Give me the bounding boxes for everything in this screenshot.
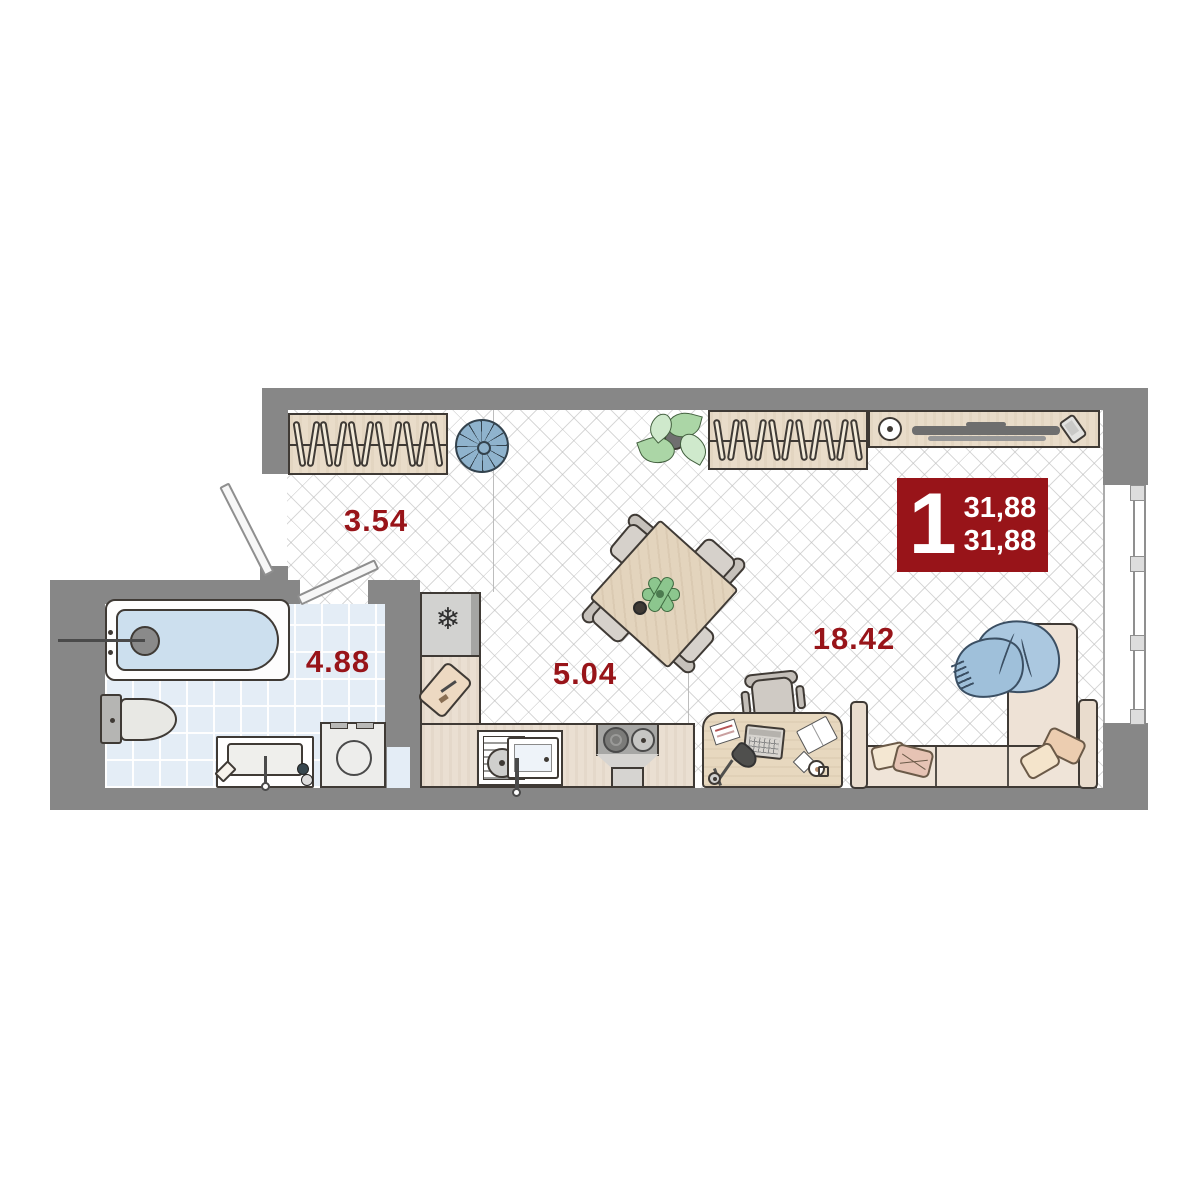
paper-icon [710,718,741,745]
knife-blade [440,680,456,693]
wall-niche [387,747,410,788]
tv-top [966,422,1006,427]
snowflake-icon: ❄ [422,602,474,637]
sofa-seam [1007,747,1009,786]
burner-icon [603,727,629,753]
wall-hall-left [262,410,288,474]
hangers-icon [716,412,860,468]
wall-top [262,388,1148,410]
floor-plan: 1 31,88 31,88 ❄ [0,0,1200,1200]
burner-icon [631,728,655,752]
sofa-seam [935,747,937,786]
fridge: ❄ [420,592,481,657]
room-label-bathroom: 4.88 [296,644,380,680]
room-label-living: 18.42 [806,621,902,657]
window-frame [1133,485,1146,723]
tv-icon [912,426,1060,435]
vanity-sink [216,736,314,788]
toilet-bowl [120,698,177,741]
window-mullion [1130,709,1145,725]
wall-bathroom-left [50,580,105,810]
wardrobe-living [708,410,868,470]
room-label-kitchen: 5.04 [543,656,627,692]
tv-stand [928,436,1046,441]
cup-icon [633,601,647,615]
wall-bottom [50,788,1148,810]
washer-control [356,722,374,729]
sofa-armrest-left [850,701,868,789]
stove [596,723,659,756]
phone-icon [1058,413,1088,445]
entrance-door-leaf [219,482,274,576]
sink-faucet [515,758,519,792]
toilet-tank [100,694,122,744]
area-badge: 1 31,88 31,88 [897,478,1048,572]
plant-icon [638,410,710,472]
room-label-hallway: 3.54 [330,503,422,539]
window-mullion [1130,556,1145,572]
badge-rooms-count: 1 [909,488,957,561]
pouf-center [477,441,491,455]
wardrobe-hallway [288,413,448,475]
mug-icon [808,760,825,777]
faucet-dot [108,650,113,655]
kitchen-sink-unit [477,730,563,786]
washing-machine [320,722,386,788]
toilet [100,692,180,746]
hood-duct [611,767,644,788]
window-mullion [1130,635,1145,651]
washer-control [330,722,348,729]
speaker-icon [878,417,902,441]
notebook-icon [796,716,838,755]
knife-handle [439,694,449,703]
pouf-icon [455,419,509,473]
faucet-dot [108,630,113,635]
blanket-icon [953,620,1071,708]
tv-console [868,410,1100,448]
bath-faucet-icon [58,639,145,642]
badge-total-area: 31,88 [964,492,1037,525]
sink-faucet-knob [512,788,521,797]
hangers-icon [296,415,440,473]
desk [702,712,843,788]
washer-drum [336,740,372,776]
vanity-faucet-knob [261,782,270,791]
toiletry-item [301,774,313,786]
wall-right-upper [1103,388,1148,485]
table-plant-icon [642,576,678,612]
desk-lamp-base [708,772,721,785]
badge-living-area: 31,88 [964,525,1037,558]
window-mullion [1130,485,1145,501]
